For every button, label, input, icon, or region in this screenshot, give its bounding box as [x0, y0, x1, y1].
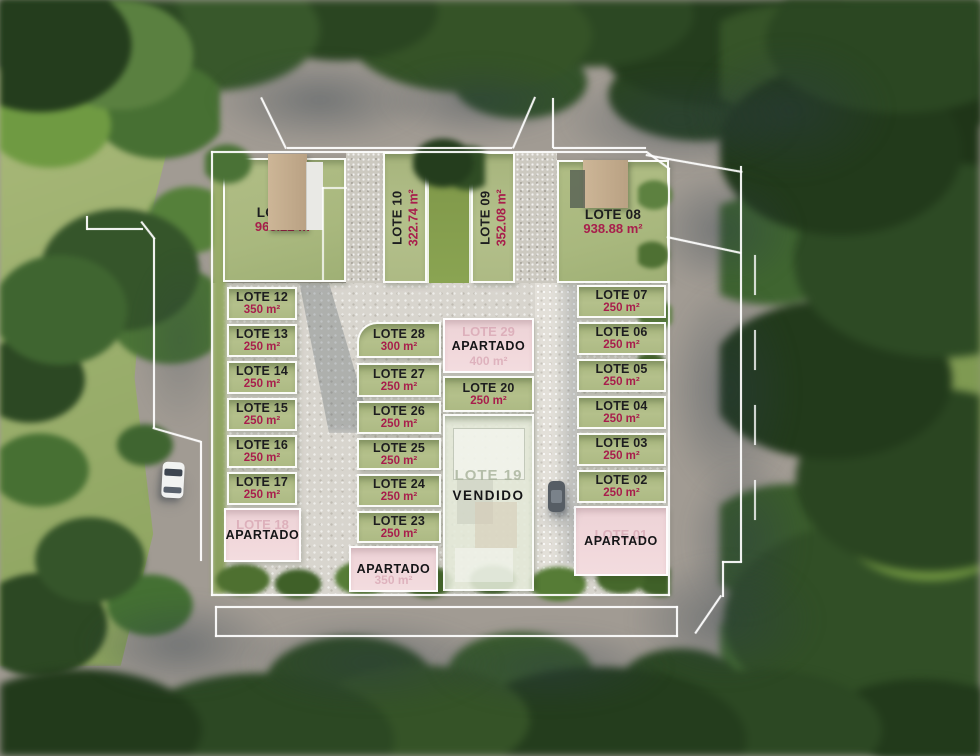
lot-lote-25[interactable]: LOTE 25 250 m²	[357, 438, 441, 470]
lot-lote-03[interactable]: LOTE 03 250 m²	[577, 433, 666, 466]
lot-lote-29-apartado[interactable]: LOTE 29 APARTADO 400 m²	[443, 318, 534, 373]
lot-area: 250 m²	[603, 302, 639, 315]
lot-name: LOTE 13	[236, 327, 288, 341]
car-gray	[548, 481, 565, 512]
lot-lote-27[interactable]: LOTE 27 250 m²	[357, 363, 441, 397]
road-marking	[287, 147, 512, 149]
parcel-outline-bottom	[211, 594, 670, 596]
road-marking	[553, 147, 646, 149]
lot-name: LOTE 17	[236, 475, 288, 489]
lot-lote-24[interactable]: LOTE 24 250 m²	[357, 474, 441, 507]
parcel-outline-right	[668, 168, 670, 596]
lot-lote-26[interactable]: LOTE 26 250 m²	[357, 401, 441, 434]
lot-area: 300 m²	[381, 341, 417, 354]
lot-area: 250 m²	[381, 381, 417, 394]
lot-area: 938.88 m²	[583, 222, 642, 237]
lot-name: LOTE 16	[236, 438, 288, 452]
lot-apartado-middle[interactable]: APARTADO 350 m²	[349, 546, 438, 592]
lot-area: 250 m²	[244, 415, 280, 428]
apartado-label: APARTADO	[226, 528, 300, 542]
parcel-outline-left	[211, 151, 213, 596]
lane-dash	[754, 480, 756, 520]
lot-name: LOTE 14	[236, 364, 288, 378]
lot-lote-23[interactable]: LOTE 23 250 m²	[357, 511, 441, 543]
parcel-outline-top	[211, 151, 647, 153]
house-roof	[268, 154, 307, 230]
house-footprint	[455, 548, 513, 582]
site-plan-aerial-view: LOTE 11 968.22 m² LOTE 10 322.74 m² LOTE…	[0, 0, 980, 756]
lot-name: LOTE 20	[462, 381, 514, 395]
lot-lote-20[interactable]: LOTE 20 250 m²	[443, 376, 534, 412]
lot-name: LOTE 02	[595, 473, 647, 487]
road-marking	[153, 238, 155, 428]
car-rear-window	[163, 487, 181, 494]
lot-area: 250 m²	[470, 395, 506, 408]
ghost-lot-area: 400 m²	[445, 355, 532, 368]
lot-area: 250 m²	[381, 528, 417, 541]
lot-area: 250 m²	[244, 489, 280, 502]
car-white	[161, 461, 185, 498]
tree-shadow	[650, 170, 800, 290]
house-wing	[306, 162, 323, 230]
road-marking	[200, 441, 202, 561]
lot-lote-04[interactable]: LOTE 04 250 m²	[577, 396, 666, 429]
road-marking	[215, 635, 678, 637]
lot-lote-13[interactable]: LOTE 13 250 m²	[227, 324, 297, 357]
lot-name: LOTE 05	[595, 362, 647, 376]
apartado-label: APARTADO	[357, 562, 431, 576]
lot-apartado-left[interactable]: LOTE 18 APARTADO	[224, 508, 301, 562]
lot-name: LOTE 04	[595, 399, 647, 413]
lot-area: 250 m²	[603, 376, 639, 389]
driveway	[346, 152, 383, 283]
lot-lote-05[interactable]: LOTE 05 250 m²	[577, 359, 666, 392]
lot-lote-06[interactable]: LOTE 06 250 m²	[577, 322, 666, 355]
ghost-lot-name: LOTE 19	[445, 468, 532, 485]
lot-name: LOTE 06	[595, 325, 647, 339]
lot-name: LOTE 23	[373, 514, 425, 528]
tree-shadow	[380, 60, 580, 140]
lot-area: 350 m²	[244, 304, 280, 317]
road-marking	[552, 98, 554, 148]
house-roof	[583, 160, 628, 208]
lot-name: LOTE 28	[373, 327, 425, 341]
lot-area: 250 m²	[244, 341, 280, 354]
road-marking	[87, 228, 143, 230]
lot-lote-07[interactable]: LOTE 07 250 m²	[577, 285, 666, 318]
road-marking	[215, 606, 678, 608]
lot-name: LOTE 27	[373, 367, 425, 381]
lot-name: LOTE 08	[585, 207, 641, 222]
tree-shadow	[430, 625, 670, 710]
lot-name: LOTE 12	[236, 290, 288, 304]
house-shadow-notch	[570, 170, 585, 208]
driveway	[515, 152, 557, 283]
road-marking	[215, 606, 217, 637]
lot-lote-15[interactable]: LOTE 15 250 m²	[227, 398, 297, 431]
lane-dash	[754, 255, 756, 295]
tree-shadow	[690, 40, 890, 180]
lot-name: LOTE 15	[236, 401, 288, 415]
lot-area: 352.08 m²	[494, 189, 508, 246]
house-footprint	[475, 502, 517, 548]
lot-name: LOTE 26	[373, 404, 425, 418]
lot-area: 250 m²	[603, 413, 639, 426]
lot-area: 250 m²	[381, 491, 417, 504]
road-marking	[740, 166, 742, 562]
lot-area: 250 m²	[381, 418, 417, 431]
lot-inner-line	[322, 187, 347, 189]
lot-lote-17[interactable]: LOTE 17 250 m²	[227, 472, 297, 505]
apartado-label: APARTADO	[452, 339, 526, 353]
lot-name: LOTE 24	[373, 477, 425, 491]
lot-name: LOTE 03	[595, 436, 647, 450]
lot-name: LOTE 25	[373, 441, 425, 455]
ghost-lot-name: LOTE 29	[445, 325, 532, 340]
road-marking	[722, 561, 742, 563]
lot-area: 250 m²	[603, 339, 639, 352]
road-marking	[86, 216, 88, 230]
car-roof	[551, 490, 562, 503]
car-windshield	[164, 469, 182, 477]
lot-area: 250 m²	[381, 455, 417, 468]
lane-dash	[754, 330, 756, 370]
lot-lote-19-vendido[interactable]: LOTE 19 VENDIDO	[443, 414, 534, 591]
forest-top-left-corner	[0, 0, 220, 200]
lot-area: 250 m²	[603, 487, 639, 500]
lot-area: 250 m²	[244, 452, 280, 465]
lot-name: LOTE 10	[390, 190, 405, 244]
lot-inner-line	[322, 187, 324, 281]
vendido-label: VENDIDO	[445, 488, 532, 503]
lot-apartado-right[interactable]: LOTE 01 APARTADO	[574, 506, 668, 576]
lot-area: 250 m²	[603, 450, 639, 463]
lot-lote-02[interactable]: LOTE 02 250 m²	[577, 470, 666, 503]
lot-lote-16[interactable]: LOTE 16 250 m²	[227, 435, 297, 468]
lot-area: 250 m²	[244, 378, 280, 391]
lot-lote-12[interactable]: LOTE 12 350 m²	[227, 287, 297, 320]
lot-name: LOTE 07	[595, 288, 647, 302]
road-marking	[722, 561, 724, 597]
road-marking	[676, 606, 678, 637]
lot-lote-28[interactable]: LOTE 28 300 m²	[357, 322, 441, 358]
lot-lote-14[interactable]: LOTE 14 250 m²	[227, 361, 297, 394]
lane-dash	[754, 405, 756, 445]
apartado-label: APARTADO	[584, 534, 658, 548]
